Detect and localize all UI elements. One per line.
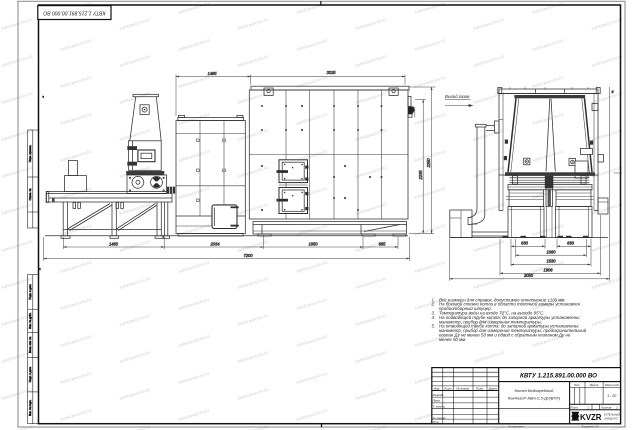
svg-text:5.: 5. [432, 324, 436, 329]
svg-text:Масса: Масса [590, 383, 599, 387]
svg-text:Лит.: Лит. [573, 383, 581, 387]
svg-text:1060: 1060 [546, 249, 556, 254]
svg-text:Взам. инв. №: Взам. инв. № [28, 337, 32, 353]
svg-text:1906: 1906 [543, 268, 553, 273]
svg-text:КВТУ 1.215.891.00.000 ВО: КВТУ 1.215.891.00.000 ВО [520, 372, 598, 379]
svg-text:№ докум.: № докум. [456, 386, 469, 390]
svg-text:2034: 2034 [209, 241, 220, 246]
svg-text:Листов: Листов [600, 406, 612, 410]
svg-text:1 : 20: 1 : 20 [607, 394, 617, 398]
svg-text:Инв. № дубл.: Инв. № дубл. [28, 312, 32, 328]
svg-text:Утв.: Утв. [433, 420, 440, 424]
svg-text:630: 630 [521, 241, 529, 246]
svg-text:Лист: Лист [569, 406, 578, 410]
svg-text:KVZR: KVZR [580, 413, 602, 422]
svg-text:2235: 2235 [418, 170, 423, 181]
svg-text:1460: 1460 [109, 241, 119, 246]
svg-text:3025: 3025 [326, 70, 336, 75]
svg-text:1485: 1485 [207, 71, 217, 76]
svg-text:2250: 2250 [426, 158, 431, 169]
svg-text:Справ. №: Справ. № [28, 188, 32, 200]
svg-text:1950: 1950 [308, 241, 318, 246]
svg-text:3050: 3050 [524, 273, 534, 278]
svg-text:Формат А2: Формат А2 [582, 424, 599, 428]
svg-text:Пров.: Пров. [433, 399, 441, 403]
svg-text:Лист: Лист [443, 386, 452, 390]
svg-text:Дата: Дата [488, 386, 497, 390]
svg-text:Т. контр.: Т. контр. [433, 405, 446, 409]
svg-text:1530: 1530 [546, 259, 556, 264]
svg-text:КОТЕЛЬНЫЙ: КОТЕЛЬНЫЙ [604, 413, 620, 416]
svg-text:Разраб.: Разраб. [433, 393, 444, 397]
svg-text:Подп. и дата: Подп. и дата [28, 284, 32, 300]
svg-text:Перв. примен.: Перв. примен. [28, 145, 32, 163]
svg-text:4.: 4. [432, 315, 436, 320]
svg-text:Подп. и дата: Подп. и дата [28, 366, 32, 382]
svg-text:Масштаб: Масштаб [605, 383, 619, 387]
svg-text:Копировал: Копировал [508, 424, 524, 428]
svg-text:Изм.: Изм. [434, 386, 441, 390]
svg-text:7200: 7200 [243, 253, 253, 258]
svg-text:Котел Водогрейный: Котел Водогрейный [515, 388, 554, 393]
svg-text:Инв. № подл.: Инв. № подл. [28, 399, 32, 415]
svg-text:менее 50 мм.: менее 50 мм. [439, 337, 466, 342]
svg-text:КВТУ 1.215.891.00.000 ВО: КВТУ 1.215.891.00.000 ВО [43, 9, 105, 15]
svg-text:ЗАВОД РУС: ЗАВОД РУС [604, 417, 618, 420]
svg-text:КовЧегоР-КВт-2,5-ДУ(ВПУ): КовЧегоР-КВт-2,5-ДУ(ВПУ) [508, 396, 561, 401]
svg-text:Выход газов: Выход газов [445, 94, 470, 99]
svg-text:Подп.: Подп. [476, 386, 484, 390]
svg-text:2.: 2. [431, 302, 436, 307]
svg-text:630: 630 [567, 241, 575, 246]
svg-text:2: 2 [615, 406, 618, 410]
svg-text:685: 685 [379, 241, 387, 246]
